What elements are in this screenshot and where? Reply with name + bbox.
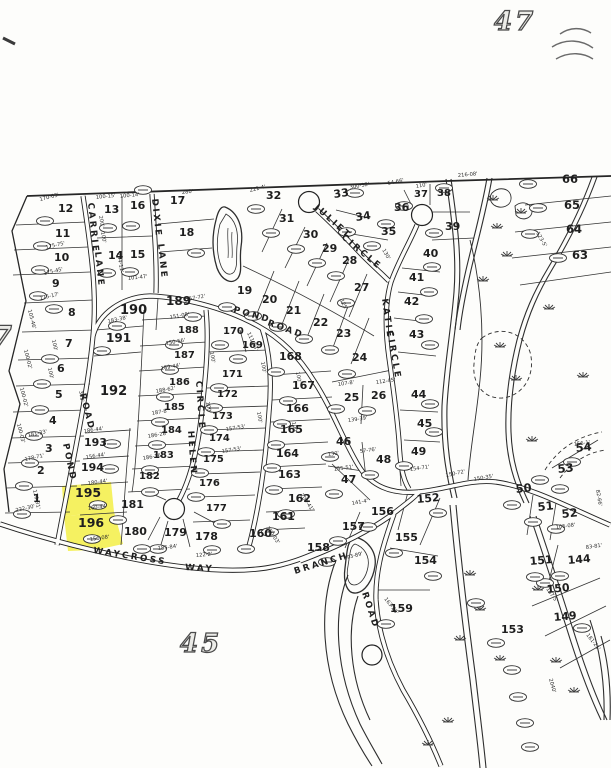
dimension-label: 155-51' <box>333 464 353 473</box>
lot-number-63: 63 <box>572 248 588 262</box>
plat-map-svg: 170-63'100-15'100-14'280'221-4'300-32'54… <box>0 0 611 768</box>
parcel-id-oval <box>488 639 505 648</box>
lot-number-160: 160 <box>249 527 272 540</box>
lot-number-29: 29 <box>322 242 337 255</box>
lot-number-52: 52 <box>561 505 578 521</box>
lot-number-178: 178 <box>195 530 218 543</box>
lot-number-20: 20 <box>262 293 278 306</box>
lot-number-166: 166 <box>286 402 309 415</box>
lot-number-191: 191 <box>106 331 131 345</box>
parcel-id-oval <box>430 509 447 518</box>
parcel-id-oval <box>552 572 569 581</box>
lot-number-151: 151 <box>529 553 553 568</box>
lot-number-157: 157 <box>342 520 365 533</box>
lot-number-188: 188 <box>178 325 199 336</box>
marsh-tuft-icon <box>477 276 489 281</box>
pond-inner <box>217 214 237 274</box>
parcel-id-oval <box>214 520 231 529</box>
dimension-label: 141-4' <box>351 498 368 507</box>
branch-road-bulb <box>362 645 382 665</box>
parcel-id-oval <box>248 205 265 214</box>
parcel-id-oval <box>123 222 140 231</box>
marsh-tuft-icon <box>442 717 454 722</box>
dimension-label: 100-02' <box>22 349 33 370</box>
parcel-id-oval <box>330 537 347 546</box>
marsh-tuft-icon <box>550 657 562 662</box>
lot-number-159: 159 <box>390 602 413 615</box>
lot-number-144: 144 <box>567 552 591 567</box>
lot-number-31: 31 <box>279 212 294 225</box>
parcel-id-oval <box>263 229 280 238</box>
dimension-label: 107-8' <box>337 380 354 388</box>
dimension-label: 82-66' <box>594 489 603 506</box>
creek <box>450 505 480 768</box>
dimension-label: 100' <box>50 339 58 351</box>
lot-number-158: 158 <box>307 541 330 554</box>
parcel-id-oval <box>46 305 63 314</box>
marsh-tuft-icon <box>526 436 538 441</box>
parcel-id-oval <box>532 476 549 485</box>
marsh-tuft-icon <box>494 342 506 347</box>
dimension-label: 221-4' <box>249 184 266 194</box>
lot-number-165: 165 <box>280 423 303 436</box>
lot-number-161: 161 <box>272 510 295 523</box>
parcel-id-oval <box>266 486 283 495</box>
lot-number-50: 50 <box>515 480 532 496</box>
squiggle-marks <box>552 29 593 59</box>
lot-number-172: 172 <box>217 389 238 400</box>
parcel-id-oval <box>268 368 285 377</box>
dixie-lane-label: DIXIE <box>149 198 163 238</box>
parcel-id-oval <box>520 180 537 189</box>
lot-number-155: 155 <box>395 531 418 544</box>
parcel-id-oval <box>188 493 205 502</box>
parcel-id-oval <box>94 347 111 356</box>
lot-number-54: 54 <box>575 439 592 455</box>
parcel-id-oval <box>322 346 339 355</box>
lot-number-38: 38 <box>437 188 451 199</box>
marsh-tuft-icon <box>568 687 580 692</box>
parcel-id-oval <box>522 743 539 752</box>
lot-number-192: 192 <box>100 384 127 399</box>
lot-number-182: 182 <box>139 471 160 482</box>
parcel-id-oval <box>525 518 542 527</box>
parcel-id-oval <box>504 666 521 675</box>
lot-number-2: 2 <box>37 464 45 477</box>
lot-number-167: 167 <box>292 379 315 392</box>
lot-number-49: 49 <box>411 445 426 458</box>
lot-number-35: 35 <box>381 225 396 238</box>
parcel-id-oval <box>288 245 305 254</box>
parcel-id-oval <box>552 485 569 494</box>
parcel-id-oval <box>426 229 443 238</box>
lot-number-196: 196 <box>78 515 104 530</box>
lot-number-10: 10 <box>54 251 70 264</box>
lot-number-190: 190 <box>120 303 147 318</box>
lot-number-5: 5 <box>55 388 63 401</box>
waycross-way-label: WAY <box>185 563 215 575</box>
dimension-label: 156-44' <box>85 452 106 461</box>
parcel-id-oval <box>32 406 49 415</box>
dimension-label: 54-66' <box>387 178 404 187</box>
dimension-label: 105-08' <box>555 522 575 531</box>
lot-number-28: 28 <box>342 254 357 267</box>
lot-number-47: 47 <box>341 473 356 486</box>
marsh-tuft-icon <box>494 655 506 660</box>
lot-number-150: 150 <box>546 581 570 596</box>
lot-number-175: 175 <box>203 454 224 465</box>
lot-number-162: 162 <box>288 492 311 505</box>
lot-number-183: 183 <box>153 450 174 461</box>
parcel-id-oval <box>212 341 229 350</box>
dimension-label: 101-47' <box>128 274 148 282</box>
lot-number-177: 177 <box>206 503 227 514</box>
lot-number-64: 64 <box>566 222 582 236</box>
lot-number-195: 195 <box>75 485 101 500</box>
lot-number-22: 22 <box>313 316 328 329</box>
sheet-number-45: 45 <box>180 629 222 659</box>
lot-number-11: 11 <box>55 227 70 240</box>
dimension-label: 130' <box>380 248 391 261</box>
dimension-label: 175-75' <box>45 241 66 251</box>
dimension-label: 122-2' <box>196 552 213 559</box>
parcel-id-oval <box>421 288 438 297</box>
parcel-id-oval <box>386 549 403 558</box>
lot-number-156: 156 <box>371 505 394 518</box>
lot-number-184: 184 <box>161 425 182 436</box>
lot-number-30: 30 <box>303 228 319 241</box>
lot-number-7: 7 <box>65 337 73 350</box>
parcel-id-oval <box>37 217 54 226</box>
parcel-id-oval <box>149 441 166 450</box>
lot-number-53: 53 <box>557 460 574 476</box>
sheet-number-47: 47 <box>494 7 536 37</box>
parcel-id-oval <box>339 370 356 379</box>
dimension-label: 139-39' <box>347 415 367 424</box>
parcel-id-oval <box>188 249 205 258</box>
dimension-label: 100' <box>208 351 216 363</box>
parcel-id-oval <box>425 572 442 581</box>
parcel-id-oval <box>142 488 159 497</box>
dimension-label: 100' <box>255 411 263 423</box>
lot-number-185: 185 <box>164 402 185 413</box>
lot-number-16: 16 <box>130 199 146 212</box>
dimension-label-layer: 170-63'100-15'100-14'280'221-4'300-32'54… <box>15 171 603 693</box>
parcel-id-oval <box>42 355 59 364</box>
dimension-label: 157-53' <box>225 424 246 433</box>
lot-number-51: 51 <box>537 498 554 514</box>
parcel-id-oval <box>34 380 51 389</box>
parcel-id-oval <box>422 341 439 350</box>
dimension-label: 57-76' <box>359 447 376 455</box>
lot-number-26: 26 <box>371 389 387 402</box>
parcel-id-oval <box>359 407 376 416</box>
swamp-teardrop <box>325 560 372 766</box>
parcel-id-oval <box>362 471 379 480</box>
lot-number-13: 13 <box>104 203 119 216</box>
lot-number-163: 163 <box>278 468 301 481</box>
pond-inner <box>347 544 368 585</box>
lot-number-3: 3 <box>45 442 53 455</box>
lot-number-45: 45 <box>417 417 432 430</box>
sheet-number-7: 7 <box>0 320 15 355</box>
lot-number-171: 171 <box>222 369 243 380</box>
parcel-id-oval <box>530 204 547 213</box>
dimension-label: 123-5' <box>534 231 547 248</box>
parcel-id-oval <box>326 490 343 499</box>
lot-number-153: 153 <box>501 623 524 636</box>
lot-number-181: 181 <box>121 498 144 511</box>
lot-number-40: 40 <box>423 247 439 260</box>
lot-number-6: 6 <box>57 362 65 375</box>
lot-number-12: 12 <box>58 202 73 215</box>
lot-number-189: 189 <box>166 294 191 308</box>
parcel-id-oval <box>328 405 345 414</box>
lot-number-170: 170 <box>223 326 244 337</box>
helen-circle-label: HELEN <box>185 431 198 476</box>
helen-circle-label: CIRCLE <box>193 381 206 431</box>
lot-number-186: 186 <box>169 377 190 388</box>
lot-number-169: 169 <box>242 340 263 351</box>
lot-number-24: 24 <box>352 351 368 364</box>
parcel-id-oval <box>504 501 521 510</box>
lot-number-164: 164 <box>276 447 299 460</box>
lot-number-39: 39 <box>445 220 460 233</box>
plat-map-scan: 170-63'100-15'100-14'280'221-4'300-32'54… <box>0 0 611 768</box>
lot-number-36: 36 <box>394 201 410 214</box>
scan-mark <box>3 38 15 44</box>
parcel-id-oval <box>230 355 247 364</box>
lot-number-173: 173 <box>212 411 233 422</box>
marsh-tuft-icon <box>510 375 522 380</box>
dimension-label: 150-72' <box>445 469 466 479</box>
dimension-label: 83-81' <box>585 543 602 551</box>
parcel-id-oval <box>574 624 591 633</box>
parcel-id-oval <box>424 263 441 272</box>
lot-number-154: 154 <box>414 554 437 567</box>
helen-circle-bulb <box>164 499 185 520</box>
dimension-label: 100' <box>46 367 54 379</box>
lot-number-193: 193 <box>84 436 107 449</box>
lot-number-33: 33 <box>333 186 350 201</box>
lot-number-48: 48 <box>376 453 391 466</box>
dimension-label: 105-46' <box>26 309 37 330</box>
parcel-id-oval <box>517 719 534 728</box>
lot-number-152: 152 <box>416 491 440 506</box>
dimension-label: 2040' <box>547 678 557 694</box>
lot-number-41: 41 <box>409 271 424 284</box>
dimension-label: 100' <box>99 231 107 243</box>
parcel-id-oval <box>468 599 485 608</box>
dimension-label: 157-53' <box>221 446 242 455</box>
marsh-tuft-icon <box>577 372 589 377</box>
creek <box>456 505 486 768</box>
dimension-label: 170-63' <box>39 192 60 203</box>
dimension-label: 100-03' <box>15 423 26 444</box>
marsh-tuft-icon <box>491 223 503 228</box>
lot-number-15: 15 <box>130 248 145 261</box>
lot-number-32: 32 <box>266 189 281 202</box>
lot-number-42: 42 <box>404 295 419 308</box>
creek-fork <box>460 178 492 330</box>
marsh-tuft-icon <box>543 304 555 309</box>
dimension-label: 185-84' <box>158 544 178 552</box>
lot-number-168: 168 <box>279 350 302 363</box>
parcel-id-oval <box>416 315 433 324</box>
parcel-id-oval <box>309 259 326 268</box>
lot-number-66: 66 <box>562 172 578 186</box>
lot-number-65: 65 <box>564 198 580 212</box>
katie-circle-bulb <box>412 205 433 226</box>
dimension-label: 181-21' <box>584 633 601 652</box>
parcel-id-oval <box>510 693 527 702</box>
parcel-id-oval <box>16 482 33 491</box>
lot-number-9: 9 <box>52 277 60 290</box>
marsh-tuft-icon <box>515 208 527 213</box>
dimension-label: 216-08' <box>458 171 478 179</box>
lot-number-17: 17 <box>170 194 185 207</box>
parcel-id-oval <box>110 516 127 525</box>
lot-number-14: 14 <box>108 249 124 262</box>
lot-number-4: 4 <box>49 414 57 427</box>
lot-number-8: 8 <box>68 306 76 319</box>
marsh-tuft-icon <box>501 251 513 256</box>
parcel-id-oval <box>550 254 567 263</box>
lot-number-37: 37 <box>414 189 428 200</box>
lot-number-19: 19 <box>237 284 252 297</box>
lot-number-25: 25 <box>344 391 359 404</box>
lot-number-179: 179 <box>164 526 187 539</box>
lot-number-43: 43 <box>409 328 424 341</box>
pond <box>344 537 375 593</box>
lot-number-44: 44 <box>411 388 427 401</box>
parcel-id-oval <box>238 545 255 554</box>
lot-number-174: 174 <box>209 433 230 444</box>
lot-number-46: 46 <box>336 435 352 448</box>
parcel-id-oval <box>328 272 345 281</box>
lot-number-149: 149 <box>553 609 577 624</box>
parcel-id-oval <box>102 465 119 474</box>
lot-number-1: 1 <box>33 492 41 505</box>
lot-number-187: 187 <box>174 350 195 361</box>
lot-number-34: 34 <box>355 209 372 224</box>
lot-number-194: 194 <box>81 461 104 474</box>
marsh-tuft-icon <box>464 570 476 575</box>
lot-number-176: 176 <box>199 478 220 489</box>
lot-number-27: 27 <box>354 281 369 294</box>
dimension-label: 100' <box>259 361 267 373</box>
lot-number-23: 23 <box>336 327 351 340</box>
lot-number-180: 180 <box>124 525 147 538</box>
lot-number-18: 18 <box>179 226 194 239</box>
dimension-label: 100-15' <box>96 193 116 201</box>
parcel-id-oval <box>527 573 544 582</box>
lot-number-21: 21 <box>286 304 301 317</box>
